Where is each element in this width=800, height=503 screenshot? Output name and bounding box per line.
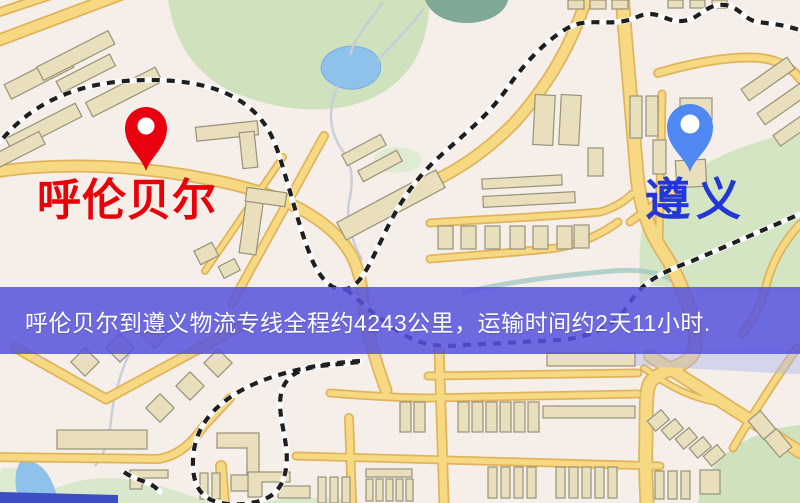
destination-label: 遵义 bbox=[645, 177, 747, 222]
route-info-text: 呼伦贝尔到遵义物流专线全程约4243公里，运输时间约2天11小时. bbox=[25, 304, 711, 338]
origin-label: 呼伦贝尔 bbox=[37, 179, 217, 223]
route-info-banner: 呼伦贝尔到遵义物流专线全程约4243公里，运输时间约2天11小时. bbox=[0, 287, 800, 354]
map-screenshot: 呼伦贝尔 遵义 呼伦贝尔到遵义物流专线全程约4243公里，运输时间约2天11小时… bbox=[0, 0, 800, 503]
map-canvas bbox=[0, 0, 800, 503]
